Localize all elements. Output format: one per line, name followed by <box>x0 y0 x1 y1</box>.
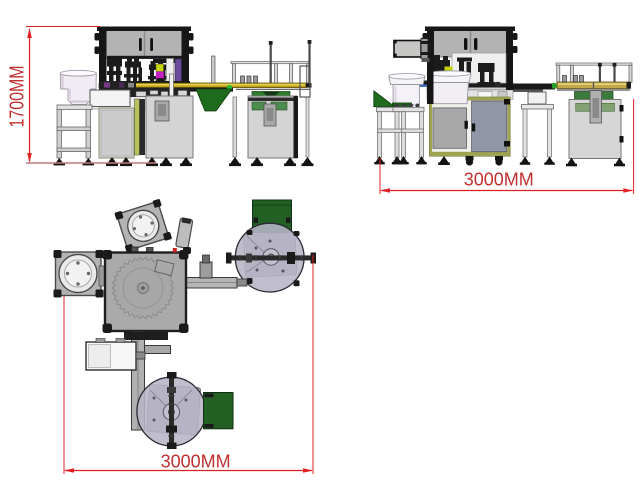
svg-text:3000MM: 3000MM <box>464 170 534 190</box>
svg-text:3000MM: 3000MM <box>161 452 231 472</box>
svg-text:1700MM: 1700MM <box>7 66 29 128</box>
